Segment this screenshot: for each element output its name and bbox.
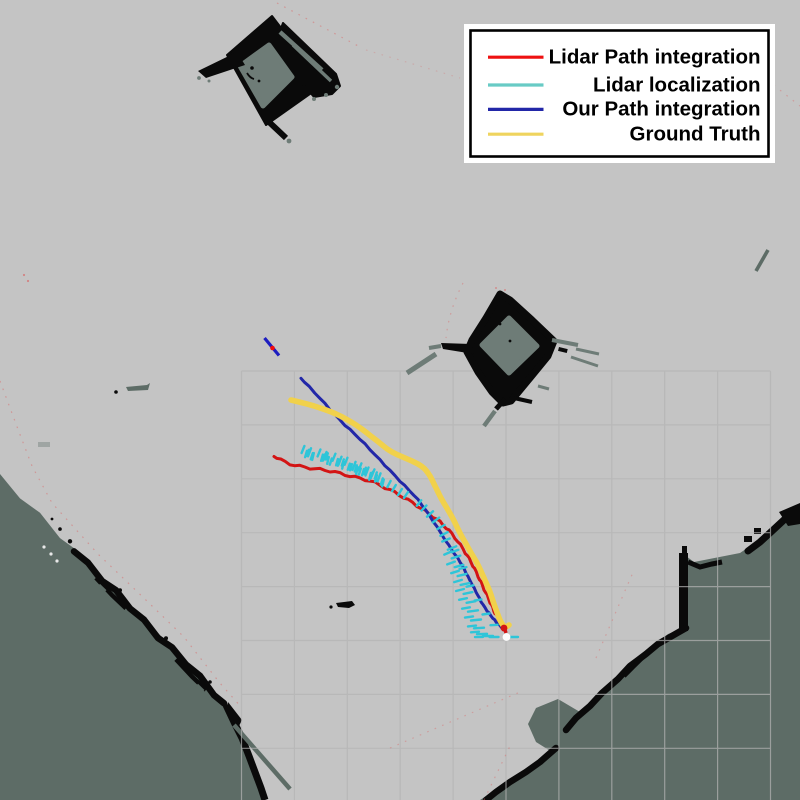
svg-text:Our Path integration: Our Path integration: [562, 98, 760, 121]
svg-text:Ground Truth: Ground Truth: [630, 123, 761, 146]
svg-text:Lidar Path integration: Lidar Path integration: [549, 46, 761, 69]
svg-text:Lidar localization: Lidar localization: [593, 73, 760, 96]
